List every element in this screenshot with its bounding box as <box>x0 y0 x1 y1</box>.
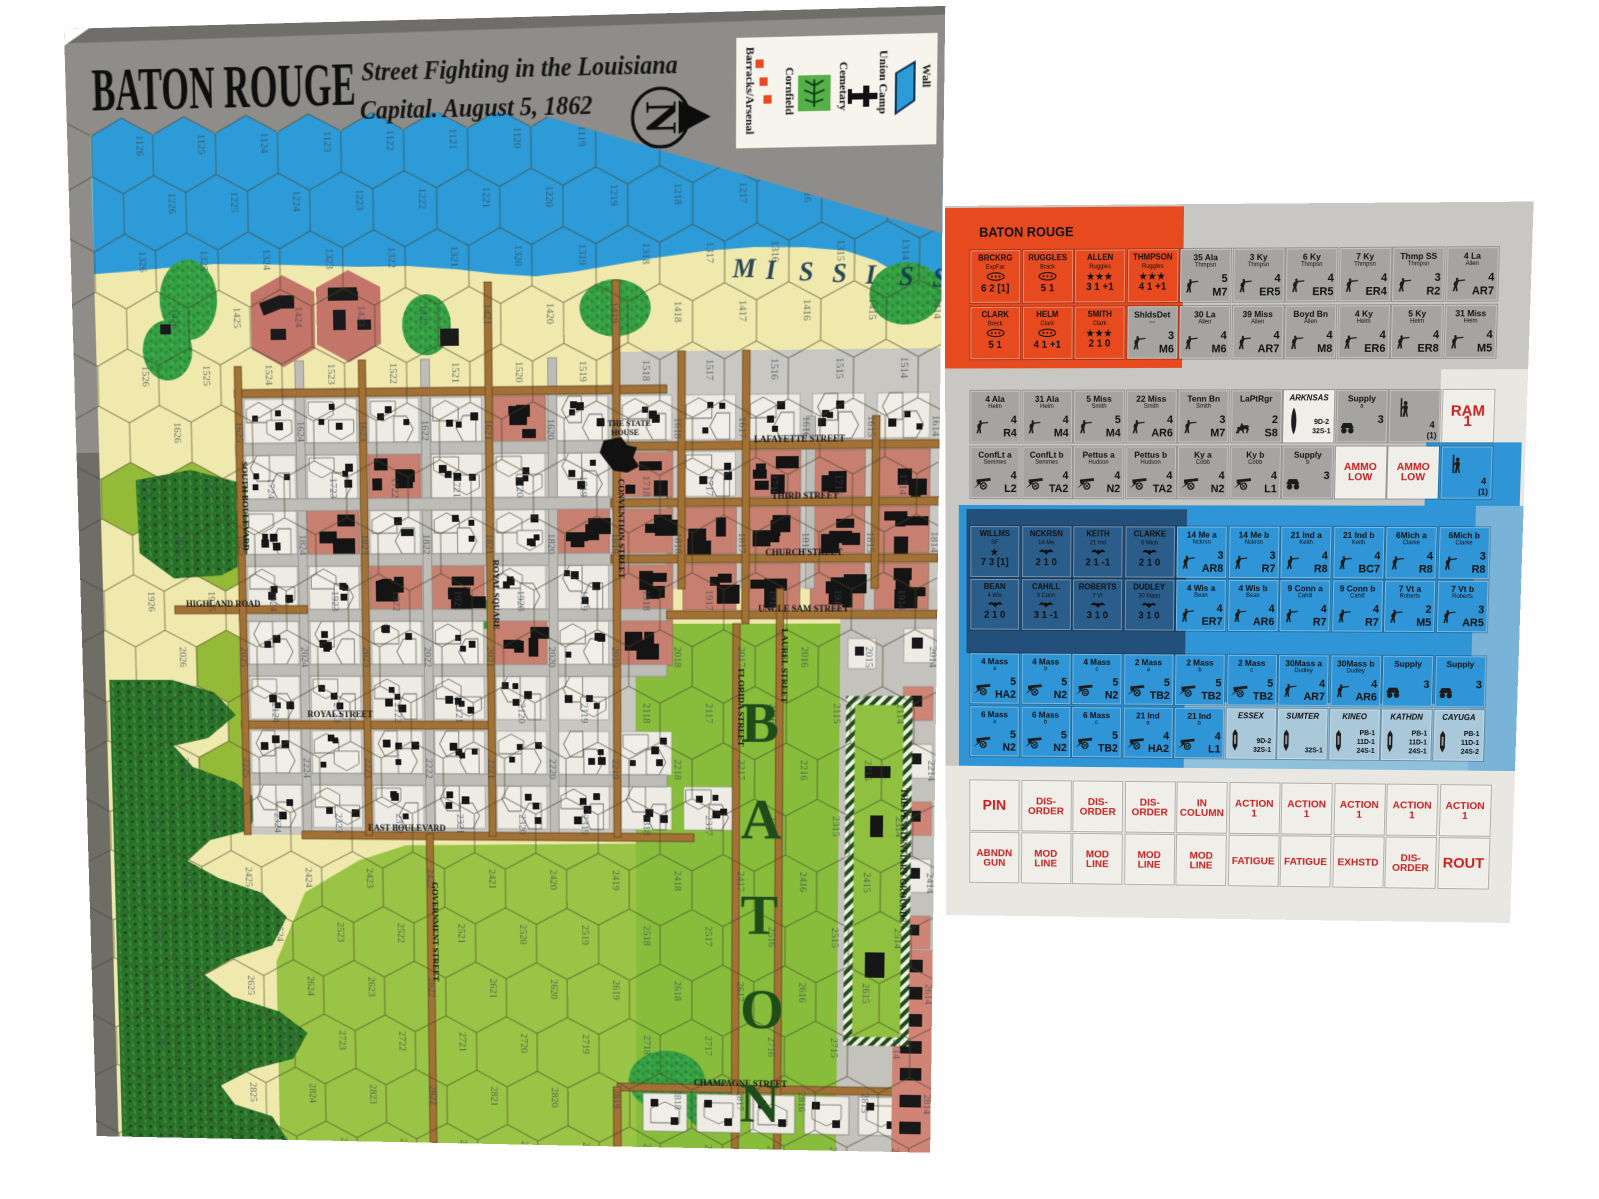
svg-text:N: N <box>636 100 684 135</box>
svg-text:2925: 2925 <box>218 1135 229 1153</box>
svg-text:2022: 2022 <box>422 647 433 668</box>
svg-text:2620: 2620 <box>548 979 559 999</box>
svg-text:2323: 2323 <box>333 813 344 833</box>
svg-text:1317: 1317 <box>704 241 715 263</box>
svg-text:2319: 2319 <box>579 815 590 835</box>
svg-text:1826: 1826 <box>174 535 185 556</box>
svg-text:1920: 1920 <box>515 590 526 611</box>
svg-text:2720: 2720 <box>518 1033 529 1053</box>
svg-text:1815: 1815 <box>864 532 875 553</box>
svg-text:1418: 1418 <box>672 301 683 323</box>
svg-text:2120: 2120 <box>516 703 527 724</box>
svg-text:2517: 2517 <box>703 926 714 946</box>
svg-text:THE STATE: THE STATE <box>607 419 650 429</box>
svg-text:2026: 2026 <box>177 647 188 667</box>
svg-text:N: N <box>740 1074 781 1135</box>
svg-text:EAST BOULEVARD: EAST BOULEVARD <box>368 823 446 833</box>
svg-text:2420: 2420 <box>547 870 558 890</box>
svg-text:1414: 1414 <box>931 297 943 320</box>
svg-text:ROYAL STREET: ROYAL STREET <box>307 709 373 719</box>
svg-text:2315: 2315 <box>830 816 841 837</box>
svg-text:2225: 2225 <box>240 758 251 778</box>
svg-text:1320: 1320 <box>512 245 523 267</box>
svg-text:1814: 1814 <box>928 531 939 553</box>
svg-text:1914: 1914 <box>895 589 906 611</box>
svg-text:1924: 1924 <box>267 591 278 612</box>
svg-text:2317: 2317 <box>703 815 714 836</box>
svg-text:2520: 2520 <box>517 924 528 944</box>
svg-text:1524: 1524 <box>263 364 274 386</box>
svg-text:T: T <box>740 885 778 947</box>
svg-text:S: S <box>932 263 945 294</box>
svg-text:1622: 1622 <box>419 420 430 441</box>
svg-text:1224: 1224 <box>290 190 301 212</box>
svg-text:1220: 1220 <box>543 185 554 207</box>
svg-text:1323: 1323 <box>323 248 334 270</box>
svg-text:1520: 1520 <box>513 361 524 382</box>
svg-text:1723: 1723 <box>327 478 338 499</box>
svg-text:1426: 1426 <box>168 308 179 329</box>
svg-text:2025: 2025 <box>238 647 249 667</box>
svg-text:1125: 1125 <box>195 134 206 155</box>
svg-text:1719: 1719 <box>577 476 588 497</box>
svg-text:1217: 1217 <box>737 182 748 204</box>
svg-text:1923: 1923 <box>329 591 340 612</box>
svg-text:2822: 2822 <box>427 1085 438 1105</box>
svg-text:2318: 2318 <box>641 815 652 836</box>
svg-text:2114: 2114 <box>894 704 905 725</box>
svg-text:2615: 2615 <box>860 983 871 1003</box>
svg-text:1518: 1518 <box>640 360 651 382</box>
svg-text:1416: 1416 <box>801 299 812 321</box>
svg-text:2515: 2515 <box>829 928 840 949</box>
svg-text:2019: 2019 <box>609 647 620 668</box>
svg-text:2625: 2625 <box>245 975 256 995</box>
svg-text:2916: 2916 <box>764 1146 775 1153</box>
svg-text:2621: 2621 <box>487 978 498 998</box>
svg-text:1919: 1919 <box>578 590 589 611</box>
svg-text:THIRD STREET: THIRD STREET <box>772 490 839 501</box>
svg-text:1517: 1517 <box>703 359 714 381</box>
svg-text:1721: 1721 <box>451 477 462 498</box>
svg-text:1424: 1424 <box>292 306 303 328</box>
svg-text:1226: 1226 <box>166 193 177 215</box>
svg-text:1415: 1415 <box>866 298 877 320</box>
svg-text:2926: 2926 <box>160 1134 171 1153</box>
svg-text:Cornfield: Cornfield <box>783 67 796 115</box>
svg-text:1519: 1519 <box>577 360 588 381</box>
svg-text:1618: 1618 <box>672 417 683 438</box>
svg-text:1817: 1817 <box>736 532 747 553</box>
svg-text:2917: 2917 <box>702 1144 713 1152</box>
svg-text:2522: 2522 <box>395 923 406 943</box>
svg-text:2016: 2016 <box>798 647 809 668</box>
svg-text:2525: 2525 <box>213 921 224 941</box>
svg-text:2526: 2526 <box>154 920 165 940</box>
svg-text:CONVENTION STREET: CONVENTION STREET <box>617 479 627 579</box>
svg-text:1525: 1525 <box>200 365 211 386</box>
svg-text:1624: 1624 <box>294 421 305 443</box>
svg-text:Capital. August 5, 1862: Capital. August 5, 1862 <box>360 90 593 125</box>
svg-text:ROYAL SQUARE: ROYAL SQUARE <box>491 560 501 630</box>
svg-text:2618: 2618 <box>672 981 683 1001</box>
svg-text:2325: 2325 <box>211 812 222 832</box>
svg-text:1615: 1615 <box>865 416 876 438</box>
svg-text:S: S <box>832 258 847 288</box>
svg-text:2820: 2820 <box>549 1088 560 1108</box>
svg-text:1325: 1325 <box>198 250 209 271</box>
svg-text:I: I <box>864 259 876 289</box>
svg-text:1423: 1423 <box>355 305 366 326</box>
svg-text:2415: 2415 <box>861 872 872 893</box>
svg-text:2324: 2324 <box>272 813 283 834</box>
svg-text:S: S <box>899 261 914 292</box>
svg-text:2223: 2223 <box>362 758 373 778</box>
svg-text:2224: 2224 <box>301 758 312 779</box>
svg-text:2424: 2424 <box>303 867 314 888</box>
svg-text:THE PENITENTIARY GROUNDS: THE PENITENTIARY GROUNDS <box>898 788 909 922</box>
svg-text:1623: 1623 <box>357 420 368 441</box>
svg-text:2823: 2823 <box>367 1084 378 1104</box>
svg-text:1626: 1626 <box>171 422 182 443</box>
svg-text:2724: 2724 <box>276 1029 287 1050</box>
svg-text:2616: 2616 <box>796 982 807 1002</box>
svg-text:Union Camp: Union Camp <box>876 50 889 114</box>
svg-text:2721: 2721 <box>457 1032 468 1052</box>
svg-text:2819: 2819 <box>611 1089 622 1109</box>
svg-text:1219: 1219 <box>608 184 619 206</box>
svg-text:1420: 1420 <box>544 303 555 325</box>
svg-text:2818: 2818 <box>672 1090 683 1110</box>
svg-text:1820: 1820 <box>545 533 556 554</box>
svg-text:2118: 2118 <box>640 703 651 723</box>
svg-text:2816: 2816 <box>796 1092 807 1112</box>
svg-text:2021: 2021 <box>484 647 495 668</box>
svg-text:2416: 2416 <box>797 872 808 893</box>
svg-text:1522: 1522 <box>387 363 398 384</box>
svg-text:2024: 2024 <box>299 647 310 668</box>
svg-text:2920: 2920 <box>519 1141 530 1153</box>
svg-text:1321: 1321 <box>448 246 459 268</box>
svg-text:2521: 2521 <box>455 924 466 944</box>
svg-text:2821: 2821 <box>488 1087 499 1107</box>
svg-text:2423: 2423 <box>364 868 375 888</box>
svg-text:1818: 1818 <box>672 533 683 554</box>
svg-text:2714: 2714 <box>890 1039 901 1060</box>
svg-text:2624: 2624 <box>305 976 316 997</box>
svg-text:2614: 2614 <box>922 984 933 1005</box>
svg-text:1223: 1223 <box>353 189 364 211</box>
svg-text:1515: 1515 <box>833 357 844 379</box>
svg-text:2924: 2924 <box>278 1136 289 1153</box>
svg-text:2015: 2015 <box>863 647 874 668</box>
svg-text:1823: 1823 <box>359 534 370 555</box>
svg-text:S: S <box>799 256 814 286</box>
svg-text:2219: 2219 <box>610 759 621 780</box>
svg-text:2426: 2426 <box>182 866 193 886</box>
svg-text:2125: 2125 <box>208 702 219 722</box>
svg-text:2126: 2126 <box>148 702 159 722</box>
svg-text:HIGHLAND ROAD: HIGHLAND ROAD <box>186 599 261 609</box>
svg-text:GOVERNMENT STREET: GOVERNMENT STREET <box>430 882 441 982</box>
svg-text:2726: 2726 <box>157 1028 168 1048</box>
svg-text:1516: 1516 <box>768 358 779 380</box>
svg-text:2921: 2921 <box>458 1140 469 1153</box>
svg-text:2825: 2825 <box>247 1082 258 1102</box>
svg-text:1421: 1421 <box>481 304 492 326</box>
svg-text:1720: 1720 <box>514 476 525 497</box>
svg-text:2518: 2518 <box>641 926 652 946</box>
svg-text:1521: 1521 <box>449 362 460 383</box>
svg-text:1318: 1318 <box>640 243 651 265</box>
svg-text:2023: 2023 <box>360 647 371 668</box>
svg-text:2626: 2626 <box>185 974 196 994</box>
svg-text:CHURCH STREET: CHURCH STREET <box>765 547 842 557</box>
svg-text:2226: 2226 <box>180 757 191 777</box>
svg-text:2221: 2221 <box>485 759 496 779</box>
svg-text:2619: 2619 <box>610 980 621 1000</box>
svg-text:2915: 2915 <box>827 1147 838 1153</box>
svg-text:2414: 2414 <box>924 873 935 894</box>
svg-text:1122: 1122 <box>384 130 395 152</box>
svg-text:1121: 1121 <box>447 128 458 150</box>
svg-text:2824: 2824 <box>307 1083 318 1104</box>
svg-text:1314: 1314 <box>899 238 910 261</box>
svg-text:2418: 2418 <box>672 871 683 891</box>
svg-text:1123: 1123 <box>321 131 332 152</box>
svg-text:1222: 1222 <box>416 188 427 210</box>
svg-text:2121: 2121 <box>453 703 464 724</box>
svg-text:1726: 1726 <box>142 479 153 500</box>
svg-text:2222: 2222 <box>423 758 434 778</box>
svg-text:1225: 1225 <box>228 191 239 213</box>
svg-text:1119: 1119 <box>576 125 587 146</box>
svg-text:1621: 1621 <box>482 419 493 440</box>
svg-text:2320: 2320 <box>516 814 527 834</box>
svg-text:LAUREL STREET: LAUREL STREET <box>779 629 789 703</box>
svg-text:I: I <box>765 255 777 285</box>
svg-text:2718: 2718 <box>641 1035 652 1055</box>
svg-text:1425: 1425 <box>231 307 242 328</box>
svg-text:2115: 2115 <box>831 703 842 724</box>
svg-text:1717: 1717 <box>703 475 714 496</box>
svg-text:1918: 1918 <box>640 590 651 611</box>
svg-text:1722: 1722 <box>389 477 400 498</box>
svg-text:2214: 2214 <box>925 760 936 782</box>
svg-text:1126: 1126 <box>133 135 144 156</box>
svg-text:2815: 2815 <box>859 1093 870 1113</box>
svg-text:Wall: Wall <box>920 64 933 88</box>
svg-text:1926: 1926 <box>145 591 156 612</box>
svg-text:1526: 1526 <box>139 366 150 387</box>
svg-text:1821: 1821 <box>483 534 494 555</box>
svg-text:2326: 2326 <box>151 812 162 832</box>
svg-text:2814: 2814 <box>921 1094 932 1115</box>
svg-text:2914: 2914 <box>889 1148 900 1153</box>
svg-text:2122: 2122 <box>392 703 403 724</box>
svg-text:1419: 1419 <box>608 302 619 324</box>
svg-text:2826: 2826 <box>188 1081 199 1101</box>
svg-text:1922: 1922 <box>390 591 401 612</box>
svg-text:2216: 2216 <box>798 760 809 781</box>
svg-text:1725: 1725 <box>203 479 214 500</box>
svg-text:1718: 1718 <box>640 475 651 496</box>
svg-text:1617: 1617 <box>736 417 747 438</box>
svg-text:2018: 2018 <box>672 647 683 668</box>
svg-text:1326: 1326 <box>136 251 147 272</box>
svg-text:2215: 2215 <box>862 760 873 781</box>
svg-text:2519: 2519 <box>579 925 590 945</box>
svg-text:2117: 2117 <box>703 703 714 723</box>
svg-text:2717: 2717 <box>702 1036 713 1056</box>
svg-text:2524: 2524 <box>274 922 285 943</box>
svg-text:1319: 1319 <box>576 244 587 266</box>
svg-text:2321: 2321 <box>454 814 465 834</box>
svg-text:1724: 1724 <box>265 478 276 500</box>
svg-text:2124: 2124 <box>269 702 280 723</box>
svg-text:1422: 1422 <box>417 304 428 325</box>
svg-text:2119: 2119 <box>578 703 589 723</box>
svg-text:2017: 2017 <box>735 647 746 668</box>
svg-text:1824: 1824 <box>297 535 308 557</box>
svg-text:2020: 2020 <box>546 647 557 668</box>
svg-text:2217: 2217 <box>735 760 746 781</box>
svg-text:Barracks/Arsenal: Barracks/Arsenal <box>743 47 756 135</box>
svg-text:BATON ROUGE: BATON ROUGE <box>91 49 356 124</box>
svg-text:2014: 2014 <box>927 647 938 669</box>
svg-text:2723: 2723 <box>337 1030 348 1050</box>
svg-text:2719: 2719 <box>580 1034 591 1054</box>
svg-text:Cemetary: Cemetary <box>837 62 850 112</box>
svg-text:1218: 1218 <box>672 183 683 205</box>
svg-text:2722: 2722 <box>396 1031 407 1051</box>
svg-text:HOUSE: HOUSE <box>611 428 639 437</box>
svg-text:2918: 2918 <box>641 1143 652 1153</box>
svg-text:1120: 1120 <box>511 127 522 149</box>
svg-text:1322: 1322 <box>385 247 396 269</box>
svg-text:2220: 2220 <box>547 759 558 780</box>
svg-text:2218: 2218 <box>672 759 683 780</box>
svg-text:O: O <box>740 980 784 1041</box>
svg-text:1417: 1417 <box>736 300 747 322</box>
svg-text:2421: 2421 <box>486 869 497 889</box>
svg-text:1917: 1917 <box>703 590 714 611</box>
svg-text:2715: 2715 <box>828 1038 839 1058</box>
svg-text:1324: 1324 <box>260 249 271 271</box>
svg-text:1714: 1714 <box>897 474 908 496</box>
svg-text:2425: 2425 <box>243 867 254 887</box>
svg-text:1514: 1514 <box>898 357 909 380</box>
svg-text:SOUTH BOULEVARD: SOUTH BOULEVARD <box>240 461 251 551</box>
svg-text:1822: 1822 <box>420 534 431 555</box>
svg-text:A: A <box>741 789 782 851</box>
svg-text:1124: 1124 <box>258 132 269 154</box>
svg-text:UNCLE SAM STREET: UNCLE SAM STREET <box>758 603 849 613</box>
svg-text:2919: 2919 <box>580 1142 591 1153</box>
svg-text:1523: 1523 <box>325 363 336 384</box>
svg-text:1221: 1221 <box>480 187 491 209</box>
svg-text:2514: 2514 <box>891 928 902 949</box>
svg-text:1614: 1614 <box>929 415 940 437</box>
svg-text:2419: 2419 <box>610 870 621 890</box>
svg-text:2523: 2523 <box>335 922 346 942</box>
svg-text:2923: 2923 <box>338 1137 349 1153</box>
svg-text:LAFAYETTE STREET: LAFAYETTE STREET <box>754 433 845 444</box>
svg-text:2725: 2725 <box>216 1028 227 1048</box>
svg-text:1921: 1921 <box>452 590 463 611</box>
svg-text:2623: 2623 <box>366 977 377 997</box>
svg-text:1625: 1625 <box>233 422 244 443</box>
svg-text:2922: 2922 <box>398 1138 409 1152</box>
svg-text:1620: 1620 <box>545 419 556 440</box>
svg-text:B: B <box>741 692 779 755</box>
svg-text:M: M <box>732 253 757 284</box>
